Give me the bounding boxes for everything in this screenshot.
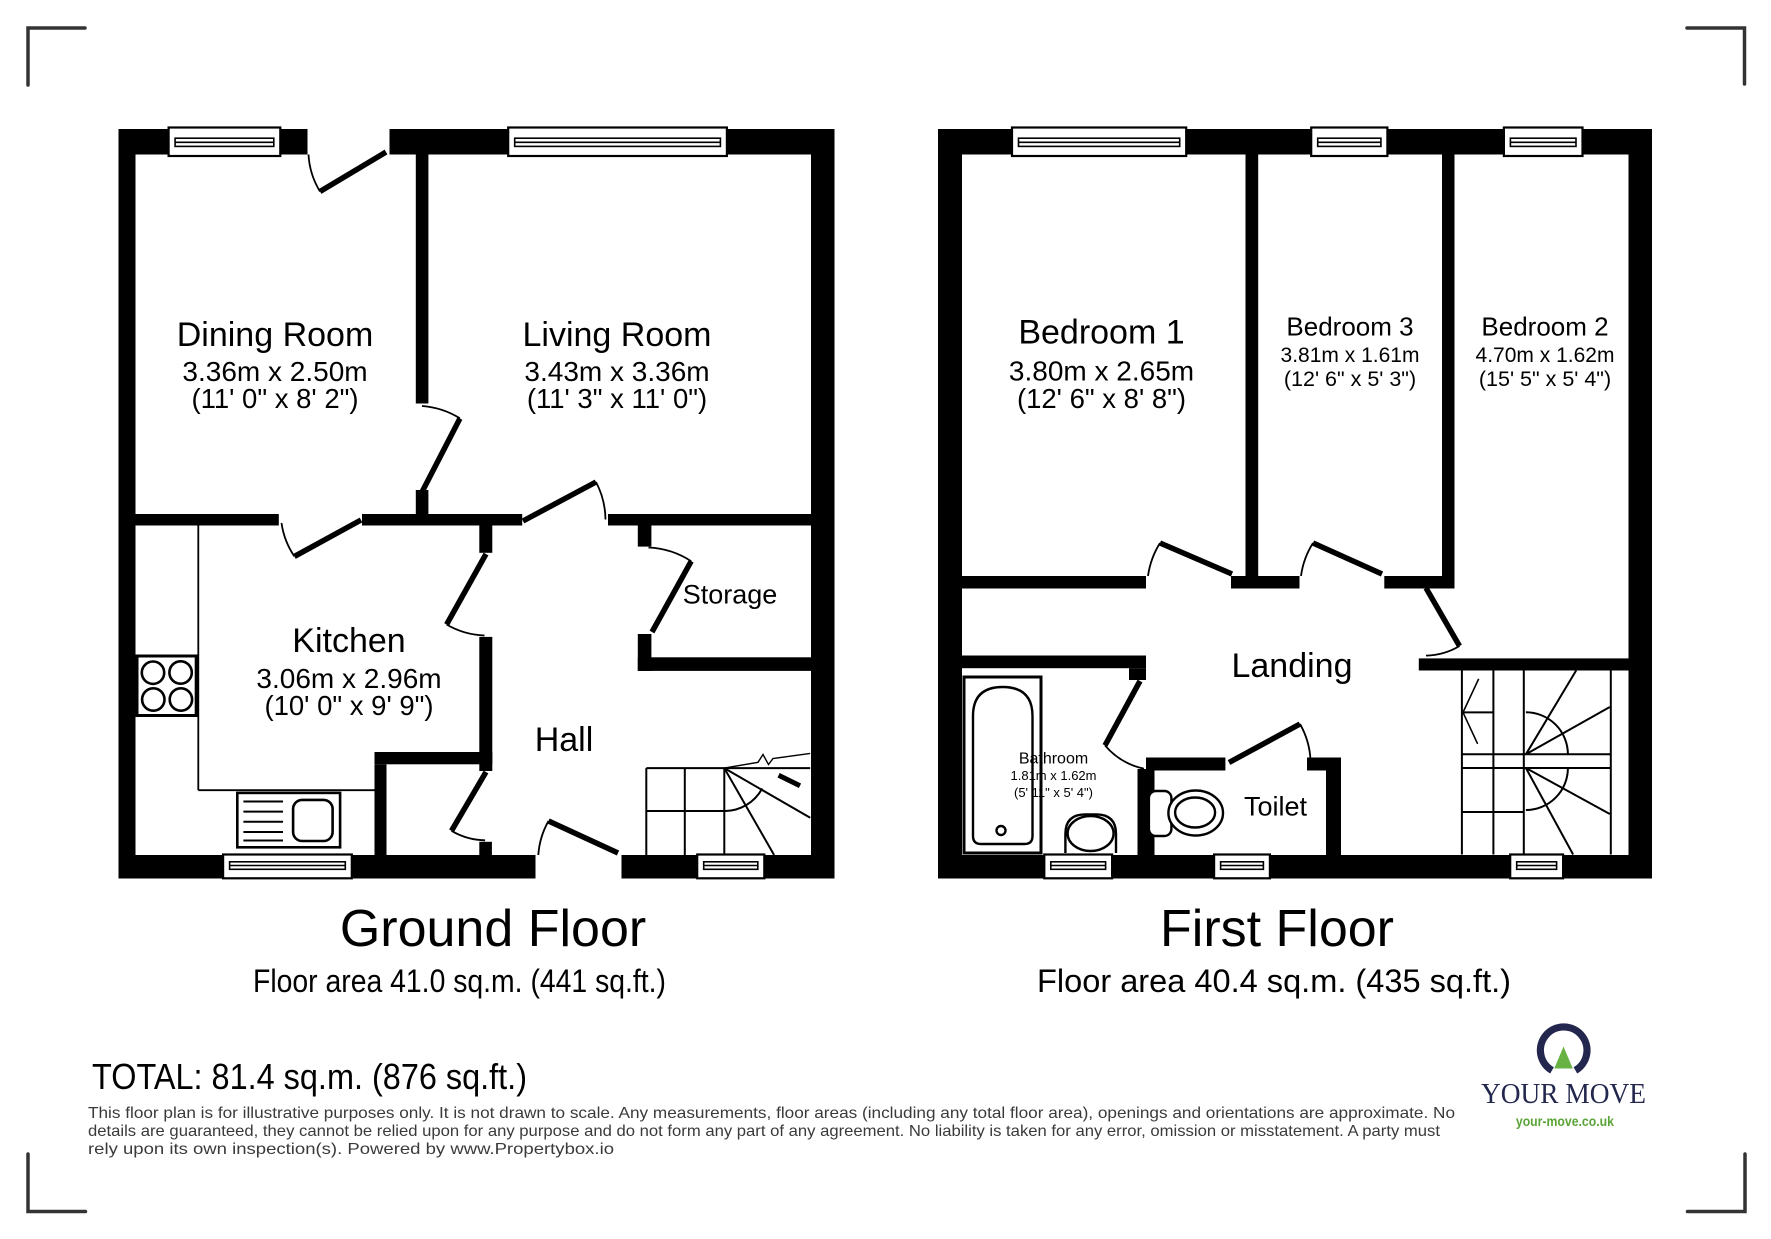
svg-text:(11' 0" x 8' 2"): (11' 0" x 8' 2") xyxy=(191,383,358,414)
svg-text:Storage: Storage xyxy=(683,580,778,610)
svg-text:First Floor: First Floor xyxy=(1160,900,1394,958)
svg-text:1.81m x 1.62m: 1.81m x 1.62m xyxy=(1011,768,1097,783)
svg-text:TOTAL: 81.4 sq.m. (876 sq.ft.): TOTAL: 81.4 sq.m. (876 sq.ft.) xyxy=(92,1056,527,1097)
svg-text:(11' 3" x 11' 0"): (11' 3" x 11' 0") xyxy=(527,383,707,414)
svg-text:Dining Room: Dining Room xyxy=(177,316,374,354)
svg-text:Toilet: Toilet xyxy=(1244,792,1308,822)
svg-text:(12' 6" x 8' 8"): (12' 6" x 8' 8") xyxy=(1017,383,1186,414)
svg-text:Living Room: Living Room xyxy=(523,316,712,354)
svg-text:This floor plan is for illustr: This floor plan is for illustrative purp… xyxy=(88,1105,1455,1122)
svg-text:Bathroom: Bathroom xyxy=(1019,751,1088,768)
svg-text:3.81m x 1.61m: 3.81m x 1.61m xyxy=(1281,344,1420,367)
svg-text:(10' 0" x 9' 9"): (10' 0" x 9' 9") xyxy=(264,690,433,721)
svg-text:Bedroom 1: Bedroom 1 xyxy=(1018,314,1184,352)
svg-text:(15' 5" x 5' 4"): (15' 5" x 5' 4") xyxy=(1479,367,1611,391)
svg-text:Kitchen: Kitchen xyxy=(292,622,405,660)
svg-text:(12' 6" x 5' 3"): (12' 6" x 5' 3") xyxy=(1284,367,1416,391)
svg-text:Landing: Landing xyxy=(1231,647,1352,685)
svg-text:3.80m x 2.65m: 3.80m x 2.65m xyxy=(1009,356,1194,387)
svg-text:4.70m x 1.62m: 4.70m x 1.62m xyxy=(1476,344,1615,367)
svg-text:YOUR MOVE: YOUR MOVE xyxy=(1481,1079,1646,1110)
svg-text:Bedroom 3: Bedroom 3 xyxy=(1286,312,1413,342)
svg-text:Bedroom 2: Bedroom 2 xyxy=(1481,312,1608,342)
svg-text:(5' 11" x 5' 4"): (5' 11" x 5' 4") xyxy=(1014,785,1093,800)
svg-text:Hall: Hall xyxy=(535,721,594,759)
svg-text:your-move.co.uk: your-move.co.uk xyxy=(1516,1113,1614,1129)
svg-text:Floor area 41.0 sq.m. (441 sq.: Floor area 41.0 sq.m. (441 sq.ft.) xyxy=(253,963,666,999)
svg-text:rely upon its own inspection(s: rely upon its own inspection(s). Powered… xyxy=(88,1141,614,1158)
svg-text:details are guaranteed, they c: details are guaranteed, they cannot be r… xyxy=(88,1123,1441,1140)
svg-text:Floor area 40.4 sq.m. (435 sq.: Floor area 40.4 sq.m. (435 sq.ft.) xyxy=(1037,963,1511,999)
svg-text:Ground Floor: Ground Floor xyxy=(340,900,646,958)
